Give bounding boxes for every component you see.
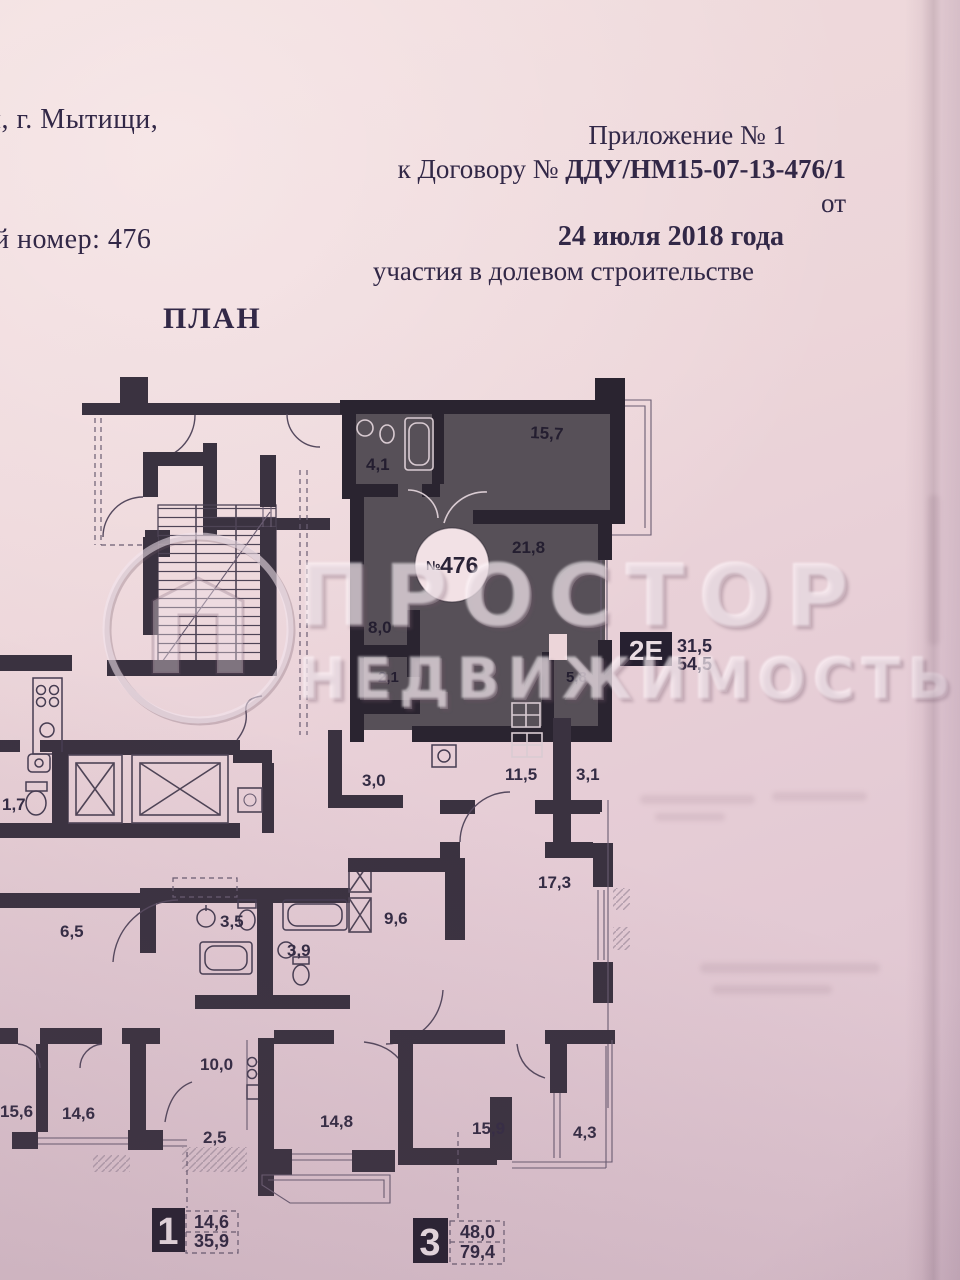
wall bbox=[593, 962, 613, 1003]
wall bbox=[571, 800, 602, 812]
balcony-slab-hatch bbox=[613, 927, 630, 950]
wall-pier bbox=[12, 1132, 38, 1149]
balcony-slab-hatch bbox=[182, 1147, 247, 1172]
room-area-label: 4,3 bbox=[573, 1123, 597, 1142]
bathtub-icon bbox=[200, 942, 252, 974]
wall bbox=[413, 1148, 497, 1165]
unit-living-area: 31,5 bbox=[677, 636, 712, 656]
toilet-icon bbox=[293, 957, 309, 985]
toilet-icon bbox=[26, 782, 47, 815]
window-lines bbox=[554, 1093, 560, 1158]
door-arc bbox=[80, 1044, 102, 1068]
window-lines bbox=[163, 1140, 187, 1146]
wall bbox=[473, 510, 625, 524]
wall bbox=[40, 1028, 102, 1044]
wall bbox=[122, 1028, 160, 1044]
photographed-contract-floorplan-page: { "page": { "header_left": { "line1": "и… bbox=[0, 0, 960, 1280]
wall bbox=[0, 740, 20, 752]
elevator-x-icon bbox=[140, 763, 220, 815]
wall bbox=[542, 652, 554, 730]
bleedthrough-smudge bbox=[655, 813, 725, 821]
window-lines bbox=[292, 1154, 352, 1160]
room-area-label: 3,0 bbox=[362, 771, 386, 790]
unit-type-legend: 2Е 31,5 54,5 bbox=[620, 632, 712, 674]
room-17-3-walls bbox=[440, 792, 630, 1108]
wall bbox=[598, 524, 612, 560]
wall bbox=[440, 842, 460, 858]
logo-circle bbox=[106, 536, 290, 720]
wall bbox=[40, 740, 57, 752]
legend-total-area: 79,4 bbox=[460, 1242, 495, 1262]
room-area-label: 17,3 bbox=[538, 873, 571, 892]
bleedthrough-smudge bbox=[700, 963, 880, 973]
wall bbox=[158, 452, 210, 466]
balcony-slab-hatch bbox=[93, 1155, 130, 1172]
wc-room bbox=[26, 754, 50, 815]
wall bbox=[260, 455, 276, 507]
trash-chute-room bbox=[233, 750, 274, 833]
room-area-label: 8,0 bbox=[368, 618, 392, 637]
door-leaf bbox=[549, 634, 567, 660]
wall bbox=[0, 1028, 18, 1044]
wall bbox=[328, 795, 403, 808]
wall bbox=[0, 823, 55, 838]
room-area-label: 6,5 bbox=[60, 922, 84, 941]
window-lines bbox=[598, 890, 604, 960]
legend-living-area: 48,0 bbox=[460, 1222, 495, 1242]
wall bbox=[360, 645, 412, 657]
wall bbox=[598, 640, 612, 740]
wall bbox=[195, 995, 350, 1009]
sink-icon bbox=[40, 723, 54, 737]
room-area-label: 14,8 bbox=[320, 1112, 353, 1131]
room-area-label: 2,1 bbox=[378, 669, 399, 686]
sink-icon bbox=[28, 754, 50, 772]
elevator-shaft-2 bbox=[132, 755, 228, 823]
room-area-label: 10,0 bbox=[200, 1055, 233, 1074]
bleedthrough-smudge bbox=[712, 985, 832, 994]
legend-number: 1 bbox=[157, 1211, 178, 1253]
wall bbox=[262, 763, 274, 833]
room-area-label: 15,7 bbox=[530, 423, 564, 444]
wall bbox=[550, 1040, 567, 1093]
door-arc bbox=[517, 1044, 545, 1078]
wall-pier bbox=[352, 1150, 395, 1172]
wall bbox=[593, 843, 613, 887]
wall bbox=[0, 893, 145, 908]
wall bbox=[356, 484, 398, 497]
wall bbox=[130, 1044, 146, 1132]
elevator-shaft-1 bbox=[68, 755, 122, 823]
unit-fill bbox=[364, 512, 605, 730]
room-area-label: 3,5 bbox=[220, 912, 244, 931]
balcony-slab-hatch bbox=[613, 888, 630, 910]
legend-entry-3: 3 48,0 79,4 bbox=[413, 1218, 504, 1264]
legend-total-area: 35,9 bbox=[194, 1231, 229, 1251]
room-area-label: 4,1 bbox=[366, 455, 390, 474]
balcony-outline bbox=[262, 1175, 390, 1203]
stove-icon bbox=[37, 686, 59, 707]
unit-total-area: 54,5 bbox=[677, 654, 712, 674]
chute-box bbox=[238, 788, 262, 812]
agency-logo-watermark bbox=[93, 523, 303, 733]
room-area-label: 1,7 bbox=[2, 795, 26, 814]
wall bbox=[233, 750, 272, 763]
wall-pillar bbox=[120, 377, 148, 405]
wall bbox=[553, 718, 571, 858]
room-area-label: 14,6 bbox=[62, 1104, 95, 1123]
wall-pier bbox=[258, 1149, 292, 1175]
wall bbox=[610, 413, 625, 510]
room-area-label: 21,8 bbox=[512, 538, 545, 557]
room-area-label: 15,6 bbox=[0, 1102, 33, 1121]
room-area-label: 3,1 bbox=[576, 765, 600, 784]
door-arc bbox=[165, 1082, 192, 1122]
wall bbox=[545, 842, 593, 858]
wall bbox=[340, 400, 625, 414]
wall bbox=[398, 1040, 413, 1165]
sink-icon bbox=[197, 905, 215, 927]
window-lines bbox=[38, 1138, 128, 1144]
unit-type-code: 2Е bbox=[629, 635, 663, 666]
wall bbox=[55, 740, 240, 755]
room-area-label: 5,8 bbox=[566, 669, 587, 686]
wall bbox=[143, 452, 158, 497]
wall bbox=[595, 378, 625, 402]
bathtub-icon bbox=[283, 900, 347, 930]
wall bbox=[348, 858, 465, 872]
wall bbox=[407, 610, 420, 677]
wall bbox=[274, 1030, 334, 1044]
wall bbox=[0, 655, 72, 671]
room-area-label: 3,9 bbox=[287, 941, 311, 960]
wall bbox=[342, 403, 356, 499]
elevator-x-icon bbox=[76, 763, 114, 815]
washer-icon bbox=[432, 745, 456, 767]
unit-number: 476 bbox=[440, 552, 478, 578]
legend-entry-1: 1 14,6 35,9 bbox=[152, 1208, 238, 1253]
door-arc bbox=[460, 792, 510, 842]
logo-building-icon bbox=[153, 578, 243, 673]
apartment-476: № 476 bbox=[340, 378, 651, 757]
wall-pier bbox=[128, 1130, 163, 1150]
bleedthrough-smudge bbox=[640, 795, 755, 804]
room-area-label: 15,9 bbox=[472, 1119, 505, 1138]
wall bbox=[257, 903, 273, 995]
bleedthrough-smudge bbox=[772, 792, 867, 801]
legend-living-area: 14,6 bbox=[194, 1212, 229, 1232]
paper-edge-shadow bbox=[905, 0, 960, 1280]
unit-number-prefix: № bbox=[426, 558, 441, 573]
door-arc bbox=[287, 414, 320, 447]
room-area-label: 9,6 bbox=[384, 909, 408, 928]
wall bbox=[55, 823, 240, 838]
room-area-label: 11,5 bbox=[505, 765, 537, 784]
legend-number: 3 bbox=[419, 1222, 440, 1264]
room-area-label: 2,5 bbox=[203, 1128, 227, 1147]
wall bbox=[356, 700, 420, 714]
chute-pipe bbox=[244, 794, 256, 806]
